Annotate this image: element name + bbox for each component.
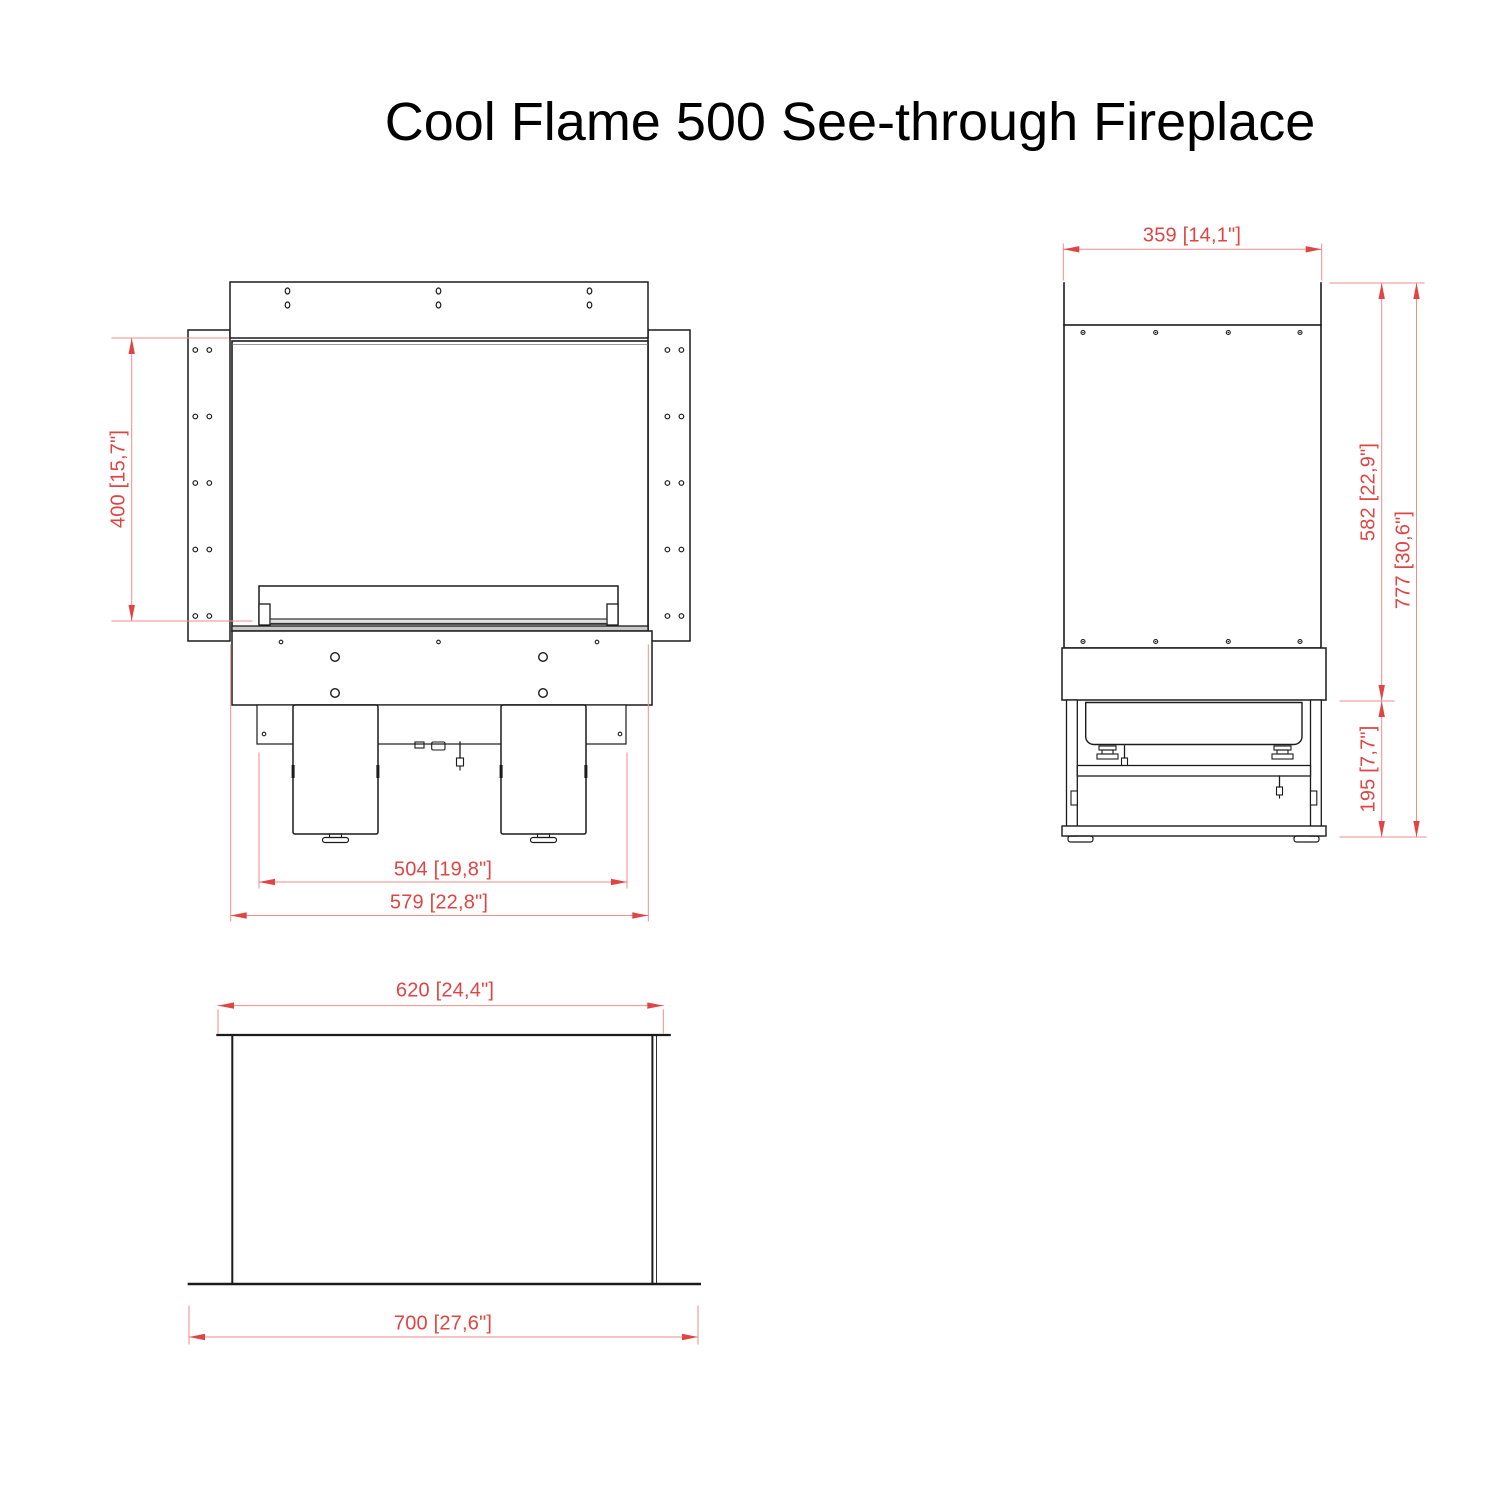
side-total-height-dimension: 777 [30,6"]: [1393, 511, 1416, 609]
page-title: Cool Flame 500 See-through Fireplace: [385, 91, 1316, 153]
front-width-dimension: 579 [22,8"]: [390, 892, 488, 915]
drawing-canvas: [0, 0, 1500, 1500]
side-depth-dimension: 359 [14,1"]: [1143, 225, 1241, 248]
front-body: [232, 341, 648, 631]
side-base-height-dimension: 195 [7,7"]: [1358, 726, 1381, 813]
technical-drawing-page: Cool Flame 500 See-through Fireplace 400…: [0, 0, 1500, 1500]
side-panel: [1064, 325, 1321, 648]
burner-tray: [259, 586, 618, 624]
side-body-height-dimension: 582 [22,9"]: [1358, 443, 1381, 541]
bottom-outer-width-dimension: 700 [27,6"]: [394, 1313, 492, 1336]
front-view: [112, 282, 690, 921]
front-feet: [323, 834, 557, 843]
front-leg-span-dimension: 504 [19,8"]: [394, 859, 492, 882]
side-base-frame: [1062, 700, 1326, 842]
front-height-dimension: 400 [15,7"]: [108, 430, 131, 528]
side-top-channel: [1064, 283, 1321, 325]
bottom-inner-width-dimension: 620 [24,4"]: [396, 980, 494, 1003]
front-top-flange: [230, 282, 648, 338]
bottom-view: [189, 1002, 700, 1344]
bottom-dimension-lines: [189, 1002, 698, 1344]
bottom-outline: [189, 1035, 700, 1284]
side-mid-box: [1062, 648, 1326, 700]
front-base-box: [232, 631, 652, 705]
